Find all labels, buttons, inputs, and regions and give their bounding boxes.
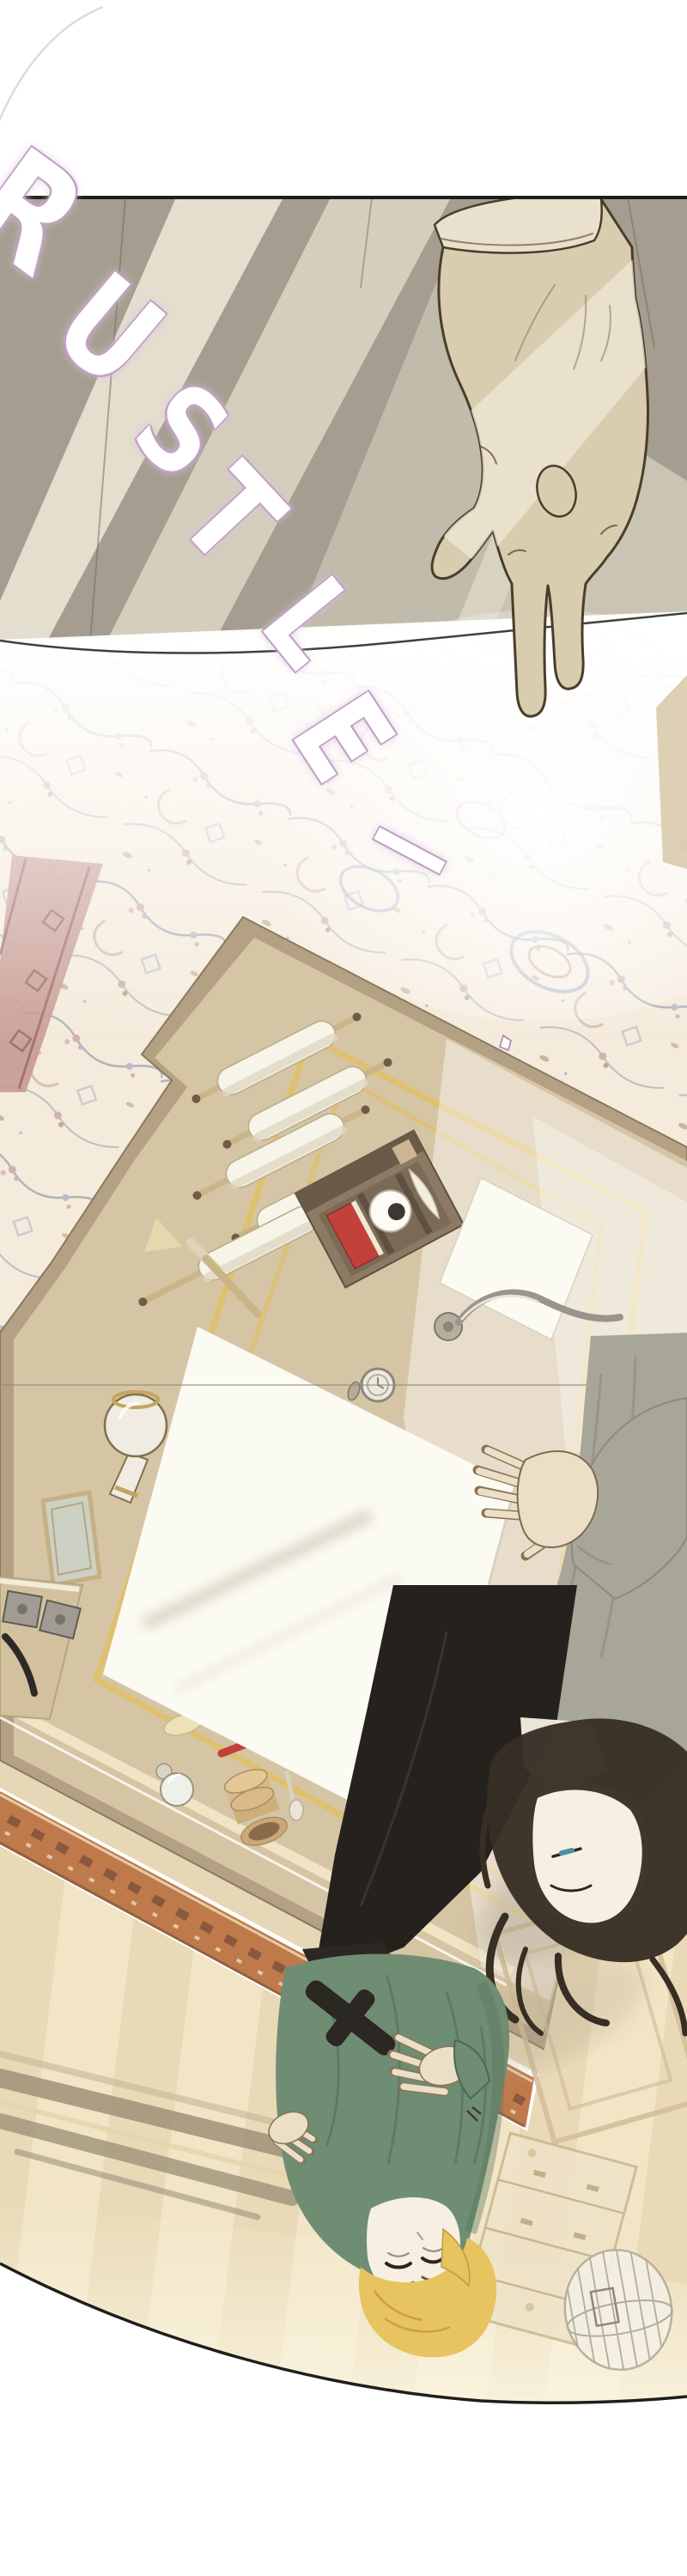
stitch-seam-line [0, 1384, 687, 1386]
page-top-margin [0, 0, 687, 196]
webtoon-page: RUSTLE— [0, 0, 687, 2576]
panel-top-border [0, 196, 687, 199]
table-mirror [43, 1492, 100, 1585]
panel-art [0, 0, 687, 2576]
